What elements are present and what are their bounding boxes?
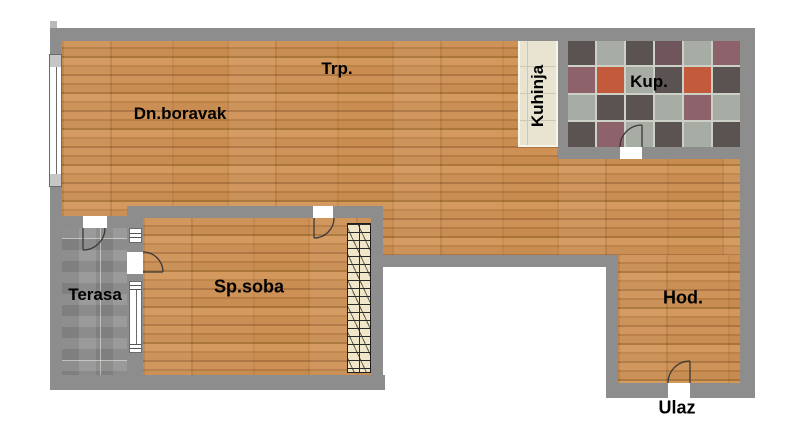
entrance-label: Ulaz	[658, 398, 695, 419]
bathroom-tile	[568, 67, 595, 92]
terrace-bedroom-door-opening	[127, 252, 143, 274]
bathroom-tile	[684, 122, 711, 147]
wall-top	[50, 28, 755, 41]
bathroom-tile	[655, 95, 682, 120]
bathroom-tile	[626, 95, 653, 120]
bathroom-tile	[713, 67, 740, 92]
wall-right	[740, 28, 755, 398]
terrace-label: Terasa	[68, 285, 122, 305]
wall-living-bottom	[371, 255, 618, 267]
terrace-door-opening	[83, 216, 107, 228]
window-tick	[130, 233, 141, 234]
entry-door-opening	[668, 383, 690, 398]
bathroom-tile	[655, 122, 682, 147]
kitchen-label: Kuhinja	[528, 65, 548, 127]
wall-bathroom-bottom	[558, 147, 740, 159]
bathroom-door-opening	[620, 147, 642, 159]
bathroom-tile	[597, 95, 624, 120]
terrace-grid-line	[62, 238, 127, 239]
hallway-floor	[618, 255, 740, 383]
bathroom-tile-grid	[568, 40, 740, 147]
wall-kitchen-bathroom	[558, 28, 568, 159]
living-room-label: Dn.boravak	[134, 104, 227, 124]
window-mullion	[56, 55, 57, 186]
bathroom-tile	[626, 40, 653, 65]
bathroom-tile	[684, 95, 711, 120]
bathroom-tile	[684, 67, 711, 92]
window-tick	[130, 285, 141, 286]
bathroom-tile	[597, 122, 624, 147]
bedroom-label: Sp.soba	[214, 277, 284, 298]
wall-bottom-left	[50, 375, 385, 390]
bathroom-tile	[568, 122, 595, 147]
terrace-grid-line	[62, 360, 127, 361]
window-tick	[130, 289, 141, 290]
window-cap	[50, 55, 61, 67]
floor-plan: Trp. Dn.boravak Kuhinja Kup. Terasa Sp.s…	[0, 0, 803, 445]
window-left-wall	[49, 54, 62, 187]
bathroom-tile	[713, 122, 740, 147]
bathroom-tile	[713, 40, 740, 65]
wall-bedroom-top	[127, 206, 383, 218]
window-tick	[130, 348, 141, 349]
bathroom-tile	[713, 95, 740, 120]
bathroom-tile	[684, 40, 711, 65]
bathroom-tile	[597, 40, 624, 65]
bathroom-tile	[568, 40, 595, 65]
hallway-label: Hod.	[663, 288, 703, 309]
dining-label: Trp.	[321, 59, 352, 79]
bathroom-tile	[626, 122, 653, 147]
bathroom-tile	[597, 67, 624, 92]
wall-hallway-left	[606, 255, 618, 398]
window-tick	[130, 237, 141, 238]
bathroom-label: Kup.	[630, 72, 668, 92]
window-tick	[130, 344, 141, 345]
window-small-terrace-wall	[129, 228, 142, 243]
window-mullion	[136, 290, 137, 344]
window-long-terrace-wall	[129, 281, 142, 353]
window-cap	[50, 174, 61, 186]
bathroom-tile	[655, 40, 682, 65]
wall-bedroom-right	[371, 206, 383, 390]
bedroom-door-opening	[313, 206, 333, 218]
wardrobe	[347, 223, 371, 373]
bathroom-tile	[568, 95, 595, 120]
